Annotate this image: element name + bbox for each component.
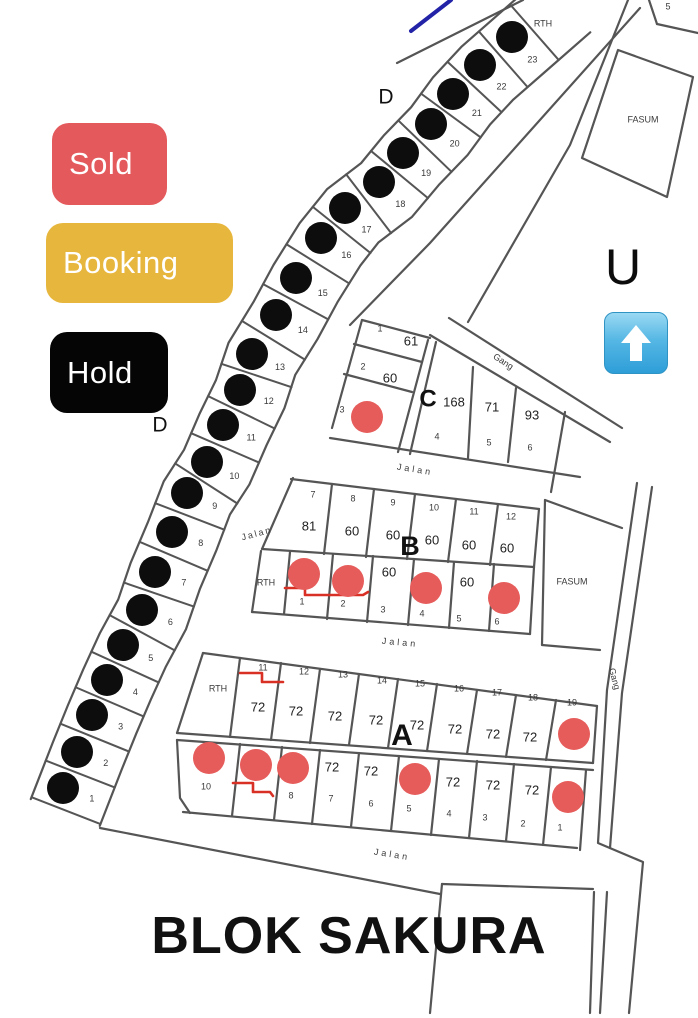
boundary-line xyxy=(448,499,456,562)
plot-number: 18 xyxy=(395,199,405,209)
plot-area: 72 xyxy=(446,774,460,789)
boundary-line xyxy=(324,484,332,554)
boundary-line xyxy=(330,438,580,477)
boundary-line xyxy=(543,767,551,845)
plot-number: 21 xyxy=(472,108,482,118)
map-label: D xyxy=(152,414,167,437)
plot-number: 7 xyxy=(310,489,315,499)
plot-number: 5 xyxy=(406,803,411,813)
street-label: Jalan xyxy=(373,847,411,863)
boundary-line xyxy=(449,562,454,628)
status-circle-hold xyxy=(47,772,79,804)
plot-area: 71 xyxy=(485,399,499,414)
plot-area: 72 xyxy=(364,763,378,778)
legend-sold-label: Sold xyxy=(69,146,133,182)
status-circle-sold xyxy=(410,572,442,604)
plot-area: 60 xyxy=(383,370,397,385)
status-circle-sold xyxy=(193,742,225,774)
street-label: Jalan xyxy=(240,524,273,542)
red-mark-line xyxy=(240,673,283,682)
map-label: 5 xyxy=(665,1,670,11)
plot-number: 4 xyxy=(446,808,451,818)
blue-boundary-line xyxy=(411,0,451,31)
status-circle-hold xyxy=(464,49,496,81)
plot-number: 11 xyxy=(247,432,256,442)
plot-number: 2 xyxy=(360,361,365,371)
plot-area: 60 xyxy=(345,523,359,538)
boundary-line xyxy=(593,706,597,763)
plot-area: 72 xyxy=(410,717,424,732)
plot-number: 6 xyxy=(168,617,173,627)
plot-number: 13 xyxy=(275,362,285,372)
plot-number: 7 xyxy=(181,578,186,588)
status-circle-hold xyxy=(191,446,223,478)
plot-number: 7 xyxy=(328,793,333,803)
boundary-line xyxy=(542,500,545,645)
status-circle-hold xyxy=(107,629,139,661)
plot-number: 12 xyxy=(264,396,274,406)
map-label: RTH xyxy=(534,18,552,28)
status-circle-hold xyxy=(91,664,123,696)
plot-area: 60 xyxy=(382,564,396,579)
legend-hold-label: Hold xyxy=(67,355,133,391)
boundary-line xyxy=(350,8,640,325)
boundary-line xyxy=(367,556,373,622)
plot-number: 3 xyxy=(118,721,123,731)
plot-number: 6 xyxy=(368,798,373,808)
status-circle-hold xyxy=(387,137,419,169)
plot-area: 72 xyxy=(251,699,265,714)
plot-number: 5 xyxy=(148,653,153,663)
boundary-line xyxy=(271,663,281,740)
plot-number: 12 xyxy=(506,511,516,521)
status-circle-sold xyxy=(277,752,309,784)
status-circle-hold xyxy=(171,477,203,509)
boundary-line xyxy=(657,24,698,33)
plot-number: 10 xyxy=(229,471,239,481)
plot-number: 17 xyxy=(362,225,372,235)
boundary-line xyxy=(551,412,565,492)
plot-area: 72 xyxy=(486,726,500,741)
boundary-line xyxy=(649,0,657,24)
boundary-line xyxy=(431,759,439,835)
boundary-line xyxy=(312,750,320,824)
legend-booking-badge: Booking xyxy=(46,223,233,303)
block-letter-B: B xyxy=(400,531,420,561)
plot-number: 8 xyxy=(198,538,203,548)
boundary-line xyxy=(344,374,412,392)
boundary-line xyxy=(310,669,320,743)
boundary-line xyxy=(490,504,498,565)
plot-number: 20 xyxy=(450,138,460,148)
boundary-line xyxy=(100,828,440,894)
plot-number: 5 xyxy=(486,437,491,447)
plot-number: 8 xyxy=(288,790,293,800)
status-circle-hold xyxy=(305,222,337,254)
plot-area: 72 xyxy=(448,721,462,736)
plot-number: 4 xyxy=(133,687,138,697)
plot-number: 2 xyxy=(520,818,525,828)
boundary-line xyxy=(427,684,437,751)
boundary-line xyxy=(467,690,477,754)
boundary-line xyxy=(351,753,359,827)
status-circle-hold xyxy=(61,736,93,768)
boundary-line xyxy=(230,658,240,737)
boundary-line xyxy=(177,740,190,813)
block-letter-C: C xyxy=(419,385,436,412)
plot-number: 9 xyxy=(212,501,217,511)
page-title: BLOK SAKURA xyxy=(0,906,698,966)
boundary-line xyxy=(545,500,622,528)
boundary-line xyxy=(391,756,399,831)
map-label: FASUM xyxy=(627,114,658,124)
plot-area: 72 xyxy=(289,703,303,718)
plot-number: 17 xyxy=(492,687,502,697)
status-circle-hold xyxy=(437,78,469,110)
up-arrow-icon xyxy=(604,312,668,374)
plot-number: 16 xyxy=(341,250,351,260)
site-plan-page: 1234567891011121314151617181920212223C61… xyxy=(0,0,698,1018)
status-circle-hold xyxy=(280,262,312,294)
status-circle-sold xyxy=(558,718,590,750)
boundary-line xyxy=(232,744,240,816)
plot-number: 6 xyxy=(494,616,499,626)
legend-booking-label: Booking xyxy=(63,245,179,281)
plot-number: 2 xyxy=(103,758,108,768)
north-indicator-label: U xyxy=(598,238,648,296)
plot-number: 23 xyxy=(527,55,537,65)
plot-number: 22 xyxy=(497,82,507,92)
plot-number: 4 xyxy=(434,431,439,441)
status-circle-hold xyxy=(126,594,158,626)
boundary-line xyxy=(546,700,556,760)
boundary-line xyxy=(580,770,586,850)
plot-area: 168 xyxy=(443,394,465,409)
plot-number: 9 xyxy=(390,497,395,507)
boundary-line xyxy=(508,388,516,462)
plot-number: 19 xyxy=(421,168,431,178)
plot-area: 72 xyxy=(486,777,500,792)
legend-hold-badge: Hold xyxy=(50,332,168,413)
status-circle-hold xyxy=(415,108,447,140)
plot-number: 15 xyxy=(415,678,425,688)
status-circle-sold xyxy=(488,582,520,614)
boundary-line xyxy=(262,478,293,549)
plot-number: 15 xyxy=(318,288,328,298)
boundary-line xyxy=(530,567,534,634)
plot-area: 61 xyxy=(404,333,418,348)
plot-number: 8 xyxy=(350,493,355,503)
plot-number: 3 xyxy=(482,812,487,822)
status-circle-hold xyxy=(139,556,171,588)
boundary-line xyxy=(327,554,333,619)
plot-number: 19 xyxy=(567,697,577,707)
boundary-line xyxy=(362,320,430,338)
plot-number: 1 xyxy=(377,323,382,333)
plot-area: 60 xyxy=(460,574,474,589)
plot-area: 60 xyxy=(425,532,439,547)
plot-number: 1 xyxy=(89,794,94,804)
status-circle-hold xyxy=(329,192,361,224)
plot-number: 3 xyxy=(380,604,385,614)
alley-label: Gang xyxy=(491,351,515,371)
plot-number: 3 xyxy=(339,404,344,414)
plot-area: 72 xyxy=(325,759,339,774)
status-circle-sold xyxy=(351,401,383,433)
status-circle-hold xyxy=(260,299,292,331)
plot-number: 11 xyxy=(258,662,267,672)
plot-number: 16 xyxy=(454,683,464,693)
status-circle-sold xyxy=(332,565,364,597)
status-circle-hold xyxy=(156,516,188,548)
plot-area: 72 xyxy=(525,782,539,797)
plot-number: 1 xyxy=(557,822,562,832)
plot-area: 72 xyxy=(369,712,383,727)
boundary-line xyxy=(442,884,593,889)
boundary-line xyxy=(430,335,610,442)
plot-number: 11 xyxy=(469,506,478,516)
plot-area: 60 xyxy=(500,540,514,555)
strip-right-edge xyxy=(100,32,591,826)
status-circle-sold xyxy=(552,781,584,813)
map-label: D xyxy=(378,86,393,109)
status-circle-sold xyxy=(399,763,431,795)
legend-sold-badge: Sold xyxy=(52,123,167,205)
status-circle-sold xyxy=(288,558,320,590)
boundary-line xyxy=(366,489,374,557)
plot-number: 14 xyxy=(377,675,387,685)
plot-area: 60 xyxy=(462,537,476,552)
boundary-line xyxy=(349,674,359,745)
status-circle-hold xyxy=(236,338,268,370)
street-label: Jalan xyxy=(381,636,418,649)
plot-number: 2 xyxy=(340,598,345,608)
plot-area: 60 xyxy=(386,527,400,542)
boundary-line xyxy=(183,812,577,848)
plot-number: 18 xyxy=(528,692,538,702)
red-mark-line xyxy=(233,783,273,796)
map-label: FASUM xyxy=(556,576,587,586)
plot-area: 72 xyxy=(328,708,342,723)
boundary-line xyxy=(534,509,539,567)
boundary-line xyxy=(284,552,290,614)
area-label: RTH xyxy=(257,577,275,587)
plot-number: 10 xyxy=(429,502,439,512)
plot-number: 10 xyxy=(201,781,211,791)
plot-number: 13 xyxy=(338,669,348,679)
plot-area: 93 xyxy=(525,407,539,422)
boundary-line xyxy=(469,761,477,838)
status-circle-hold xyxy=(496,21,528,53)
street-label: Jalan xyxy=(396,462,434,478)
plot-number: 12 xyxy=(299,666,309,676)
plot-number: 4 xyxy=(419,608,424,618)
plot-number: 6 xyxy=(527,442,532,452)
status-circle-hold xyxy=(363,166,395,198)
boundary-line xyxy=(506,764,514,841)
plot-number: 5 xyxy=(456,613,461,623)
status-circle-hold xyxy=(224,374,256,406)
boundary-line xyxy=(468,367,473,458)
status-circle-hold xyxy=(207,409,239,441)
plot-number: 14 xyxy=(298,325,308,335)
area-label: RTH xyxy=(209,683,227,693)
status-circle-hold xyxy=(76,699,108,731)
plot-area: 72 xyxy=(523,729,537,744)
plot-area: 81 xyxy=(302,518,316,533)
boundary-line xyxy=(506,695,516,757)
boundary-line xyxy=(177,653,203,733)
plot-number: 1 xyxy=(299,596,304,606)
boundary-line xyxy=(542,645,600,650)
status-circle-sold xyxy=(240,749,272,781)
